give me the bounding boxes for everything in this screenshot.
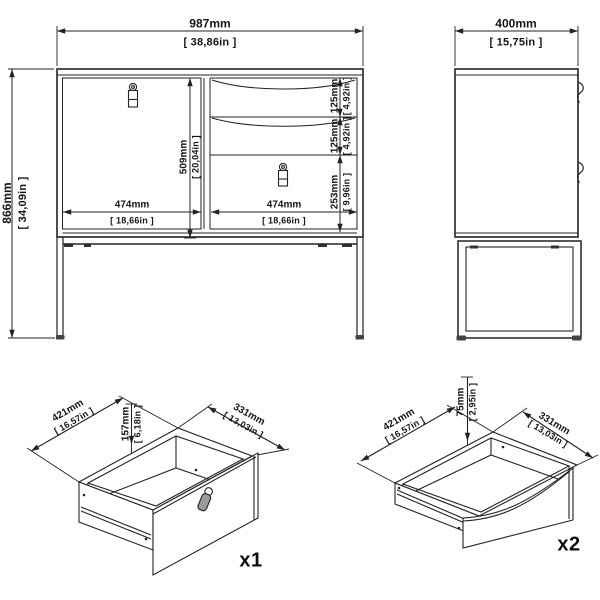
dim-value-in: [ 34,09in ] <box>18 177 29 230</box>
side-view-drawing <box>455 26 583 341</box>
dim-label-x1-height: 157mm [ 6,18in ] <box>121 405 142 444</box>
front-right-leg <box>357 237 363 338</box>
dim-value-mm: 866mm <box>1 182 13 223</box>
front-extension-lines <box>8 26 363 338</box>
dim-value-mm: 75mm <box>456 388 466 417</box>
dim-label-right-width: 474mm [ 18,66in ] <box>262 201 306 226</box>
dim-label-depth: 400mm [ 15,75in ] <box>490 18 543 49</box>
dim-value-mm: 987mm <box>189 18 230 30</box>
dim-value-mm: 125mm <box>330 119 340 153</box>
dim-value-mm: 400mm <box>495 18 536 30</box>
dim-value-mm: 125mm <box>330 79 340 113</box>
technical-drawing <box>0 0 600 600</box>
dim-value-in: [ 4,92in ] <box>341 77 351 116</box>
dim-value-in: [ 18,66in ] <box>110 216 154 226</box>
dim-label-x2-height: 75mm [ 2,95in ] <box>456 383 477 422</box>
frame-mounting-tabs <box>64 245 352 248</box>
dim-label-drawer2-height: 125mm [ 4,92in ] <box>330 117 351 156</box>
cabinet-divider <box>204 78 210 229</box>
dim-value-mm: 509mm <box>180 140 190 174</box>
drawer-x2-drawing <box>357 377 598 548</box>
dim-value-mm: 157mm <box>121 407 131 441</box>
front-left-leg <box>57 237 63 338</box>
dim-value-in: [ 6,18in ] <box>132 405 142 444</box>
drawer-x1-count: x1 <box>239 550 262 573</box>
drawer-handle <box>279 163 288 186</box>
dim-label-door-width: 474mm [ 18,66in ] <box>110 201 154 226</box>
side-leg-frame <box>457 241 582 341</box>
door-handle <box>129 83 138 107</box>
front-view-drawing <box>8 26 364 340</box>
dim-value-in: [ 9,96in ] <box>341 173 351 212</box>
front-leg-frame <box>56 237 364 340</box>
x1-drawer-box <box>79 428 258 575</box>
dim-value-mm: 474mm <box>115 201 149 211</box>
dim-value-in: [ 4,92in ] <box>341 117 351 156</box>
x2-drawer-box <box>395 432 577 548</box>
drawer-x2-count: x2 <box>557 534 580 557</box>
dim-value-in: [ 2,95in ] <box>467 383 477 422</box>
dim-label-front-width: 987mm [ 38,86in ] <box>184 18 237 49</box>
dim-value-mm: 474mm <box>267 201 301 211</box>
dim-value-in: [ 20,04in ] <box>191 135 201 179</box>
dim-value-in: [ 18,66in ] <box>262 216 306 226</box>
dim-value-in: [ 15,75in ] <box>490 38 543 49</box>
furniture-dimension-diagram: 987mm [ 38,86in ] 866mm [ 34,09in ] 400m… <box>0 0 600 600</box>
dim-label-drawer1-height: 125mm [ 4,92in ] <box>330 77 351 116</box>
front-dimension-lines <box>12 31 363 338</box>
side-cabinet-body <box>455 69 578 237</box>
dim-value-in: [ 38,86in ] <box>184 38 237 49</box>
dim-value-mm: 253mm <box>330 175 340 209</box>
dim-label-front-height: 866mm [ 34,09in ] <box>1 177 29 230</box>
dim-label-door-height: 509mm [ 20,04in ] <box>180 135 201 179</box>
dim-label-drawer3-height: 253mm [ 9,96in ] <box>330 173 351 212</box>
front-leg-feet <box>56 335 364 340</box>
